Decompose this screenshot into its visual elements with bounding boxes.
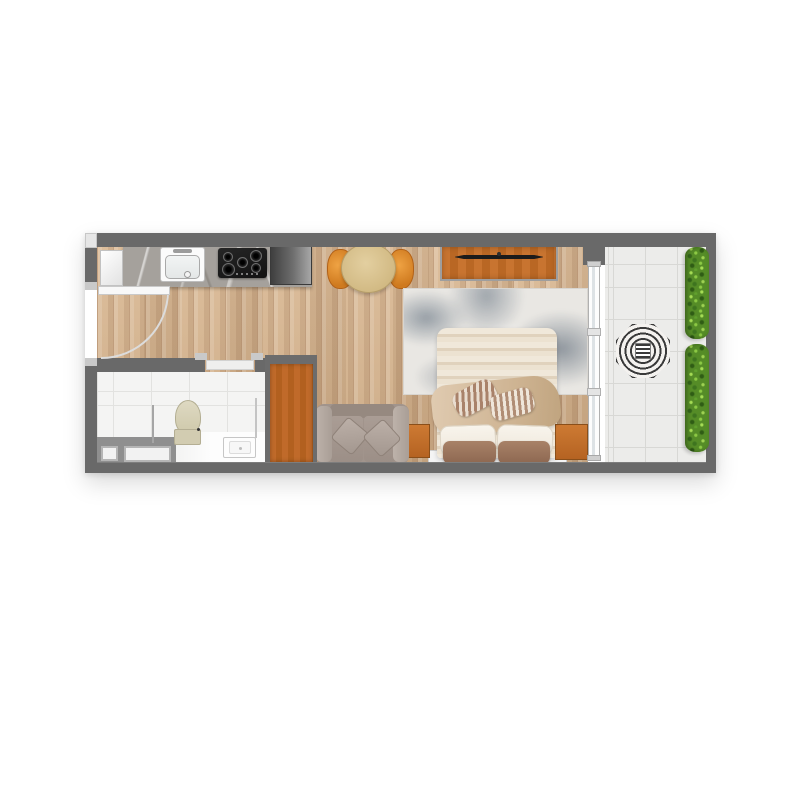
toilet-button-icon — [197, 428, 200, 431]
hob-burner-icon — [237, 257, 248, 268]
vanity-sink — [223, 437, 256, 458]
utility-niche-2 — [124, 446, 171, 462]
wall-left-lower — [85, 358, 97, 473]
wall-top — [85, 233, 716, 247]
faucet-icon — [173, 249, 192, 253]
hob-knob-icon — [241, 273, 243, 275]
wardrobe-door — [270, 364, 313, 462]
sink-basin — [165, 255, 200, 279]
parasol-center-icon — [635, 343, 651, 359]
hedge-planter-top — [685, 247, 709, 339]
door-jamb-icon — [195, 353, 207, 360]
hob-knob-icon — [256, 273, 258, 275]
page — [0, 0, 800, 800]
sink-drain-icon — [184, 271, 191, 278]
hob-knob-icon — [251, 273, 253, 275]
entry-door-leaf — [98, 286, 170, 295]
hob-burner-icon — [250, 250, 262, 262]
hob-burner-icon — [223, 252, 233, 262]
hob-knob-icon — [246, 273, 248, 275]
bed-pillow-brown-right — [498, 441, 550, 464]
window-mullion-2 — [587, 388, 601, 396]
corner-column — [85, 233, 97, 248]
door-jamb-icon — [85, 358, 97, 366]
sofa-arm-left — [316, 406, 332, 462]
hedge-planter-bottom — [685, 344, 709, 452]
hob-burner-icon — [251, 263, 261, 273]
wardrobe-frame — [265, 355, 317, 465]
tv-console — [440, 245, 558, 281]
toilet-tank — [174, 429, 201, 445]
floor-plan — [85, 233, 716, 473]
nightstand-right — [555, 424, 588, 460]
shower-screen-right — [255, 398, 257, 438]
refrigerator — [270, 246, 312, 285]
vanity-drain-icon — [239, 447, 242, 450]
wall-bathroom-top — [97, 358, 205, 372]
window-cap-bottom — [587, 455, 601, 461]
dining-table — [341, 243, 396, 293]
sliding-glass-window — [588, 263, 600, 461]
hob-burner-icon — [222, 263, 235, 276]
sofa — [316, 404, 409, 464]
wall-bottom — [85, 462, 716, 473]
wall-bathroom-stub — [255, 358, 265, 372]
window-cap-top — [587, 261, 601, 267]
bathroom-sliding-door — [206, 360, 254, 370]
hob-knob-icon — [236, 273, 238, 275]
bed-pillow-brown-left — [443, 441, 496, 464]
gas-hob — [218, 248, 267, 278]
kitchen-sink — [160, 247, 205, 282]
entry-cabinet — [100, 250, 123, 286]
shower-screen-left — [152, 405, 154, 443]
utility-niche-1 — [101, 446, 118, 461]
door-jamb-icon — [251, 353, 263, 360]
door-jamb-icon — [85, 282, 97, 290]
tv-stand-icon — [497, 252, 501, 256]
window-mullion-1 — [587, 328, 601, 336]
